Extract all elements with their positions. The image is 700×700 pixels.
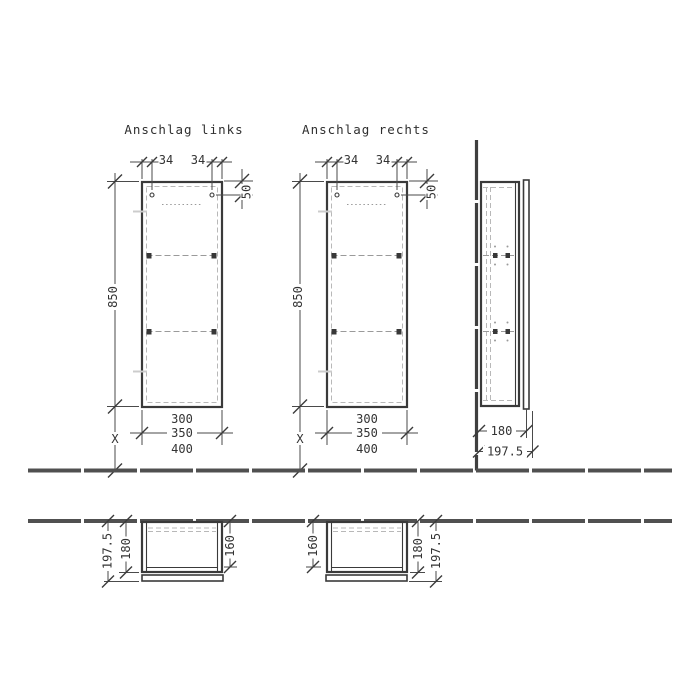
view-title: Anschlag rechts: [302, 122, 430, 137]
dim-width-350: 350: [356, 426, 378, 440]
pin-hole: [507, 340, 509, 342]
view-title: Anschlag links: [124, 122, 243, 137]
pin-hole: [494, 246, 496, 248]
technical-drawing: Anschlag links 34 34 50 850: [0, 0, 700, 700]
door-plan-profile: [142, 575, 223, 581]
dim-hole-offset-right: 34: [376, 153, 390, 167]
shelf-pin: [506, 253, 511, 258]
dim-hole-top-offset: 50: [425, 185, 439, 199]
dim-body-depth: 180: [491, 424, 513, 438]
dim-total-depth: 197.5: [429, 533, 443, 569]
pin-hole: [494, 340, 496, 342]
dim-width-300: 300: [171, 412, 193, 426]
shelf-pin: [332, 329, 337, 335]
pin-hole: [494, 322, 496, 324]
shelf-pin: [493, 253, 498, 258]
dim-variable-height: X: [296, 432, 304, 446]
door-plan-profile: [326, 575, 407, 581]
dim-height: 850: [291, 286, 305, 308]
pin-hole: [507, 246, 509, 248]
door-side-profile: [524, 180, 530, 409]
dim-width-400: 400: [171, 442, 193, 456]
pin-hole: [494, 264, 496, 266]
dim-total-depth: 197.5: [487, 445, 523, 459]
dim-total-depth: 197.5: [101, 533, 115, 569]
shelf-pin: [397, 253, 402, 259]
section-lines: [28, 471, 672, 522]
dim-inner-depth: 160: [223, 535, 237, 557]
cabinet-plan-outline: [327, 522, 407, 572]
shelf-pin: [147, 253, 152, 259]
shelf-pin: [493, 329, 498, 334]
dim-body-depth: 180: [411, 538, 425, 560]
front-view-right: Anschlag rechts 34 34 50 850: [291, 122, 439, 478]
side-view: 180 197.5: [473, 140, 539, 471]
shelf-pin: [506, 329, 511, 334]
dim-width-400: 400: [356, 442, 378, 456]
dim-hole-offset-left: 34: [344, 153, 358, 167]
dim-inner-depth: 160: [306, 535, 320, 557]
top-view-left: 197.5 180 160: [101, 515, 238, 588]
shelf-pin: [397, 329, 402, 335]
shelf-pin: [147, 329, 152, 335]
drawing-canvas: Anschlag links 34 34 50 850: [0, 0, 700, 700]
dim-width-300: 300: [356, 412, 378, 426]
dim-width-350: 350: [171, 426, 193, 440]
cabinet-front: [133, 182, 222, 407]
dim-variable-height: X: [111, 432, 119, 446]
dim-hole-offset-left: 34: [159, 153, 173, 167]
shelf-pin: [332, 253, 337, 259]
dim-hole-offset-right: 34: [191, 153, 205, 167]
cabinet-body-outline: [327, 182, 407, 407]
shelf-pin: [212, 253, 217, 259]
dim-body-depth: 180: [119, 538, 133, 560]
cabinet-plan-outline: [142, 522, 222, 572]
shelf-pin: [212, 329, 217, 335]
top-view-right: 160 180 197.5: [306, 515, 443, 588]
dim-hole-top-offset: 50: [240, 185, 254, 199]
front-view-left: Anschlag links 34 34 50 850: [106, 122, 254, 478]
dimensions: 180 197.5: [473, 409, 539, 459]
cabinet-body-outline: [142, 182, 222, 407]
pin-hole: [507, 264, 509, 266]
cabinet-front: [318, 182, 407, 407]
pin-hole: [507, 322, 509, 324]
dim-height: 850: [106, 286, 120, 308]
